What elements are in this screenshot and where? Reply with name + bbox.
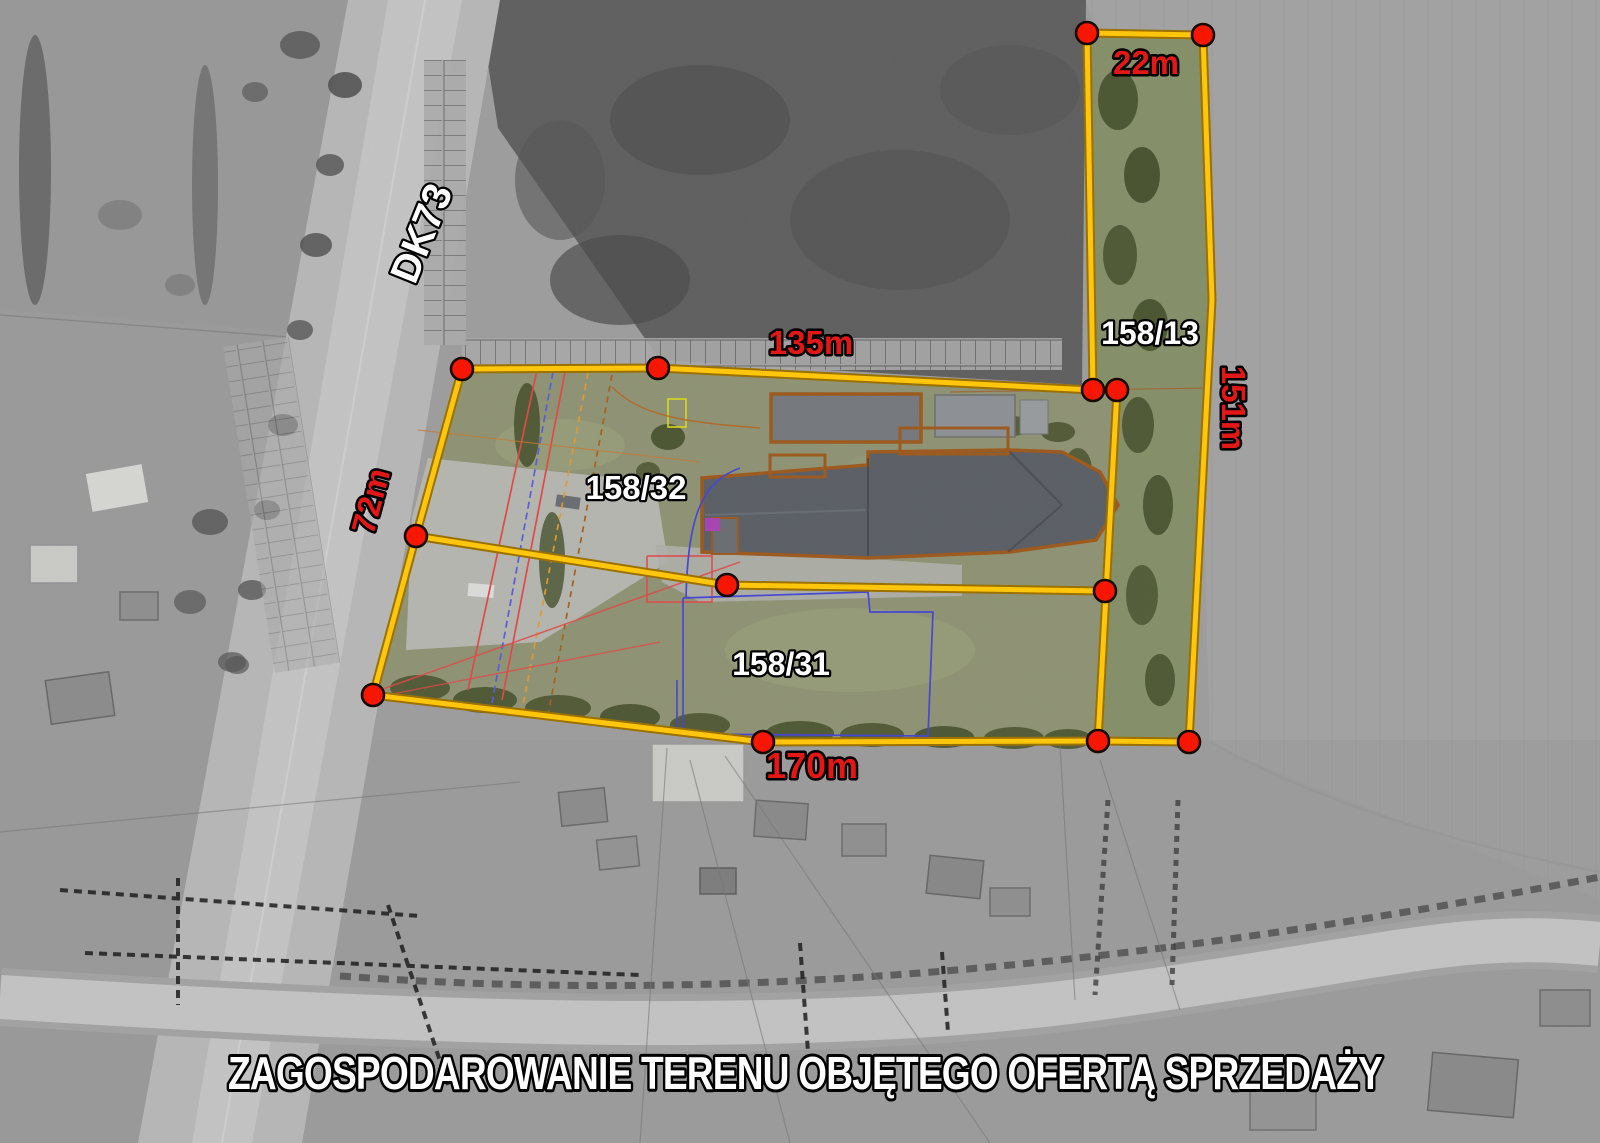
measurement-north: 135m <box>769 324 853 361</box>
map-title: ZAGOSPODAROWANIE TERENU OBJĘTEGO OFERTĄ … <box>228 1047 1382 1099</box>
parcel-label-158-13: 158/13 <box>1101 315 1199 351</box>
measurement-strip-width: 22m <box>1113 44 1179 81</box>
aerial-map: DK73 22m 135m 158/13 151m 72m 158/32 158… <box>0 0 1600 1143</box>
photo-grain <box>0 0 1600 1143</box>
measurement-south: 170m <box>766 745 858 786</box>
measurement-east: 151m <box>1215 366 1252 450</box>
parcel-label-158-32: 158/32 <box>586 469 687 506</box>
parcel-label-158-31: 158/31 <box>732 646 830 682</box>
map-canvas: DK73 22m 135m 158/13 151m 72m 158/32 158… <box>0 0 1600 1143</box>
